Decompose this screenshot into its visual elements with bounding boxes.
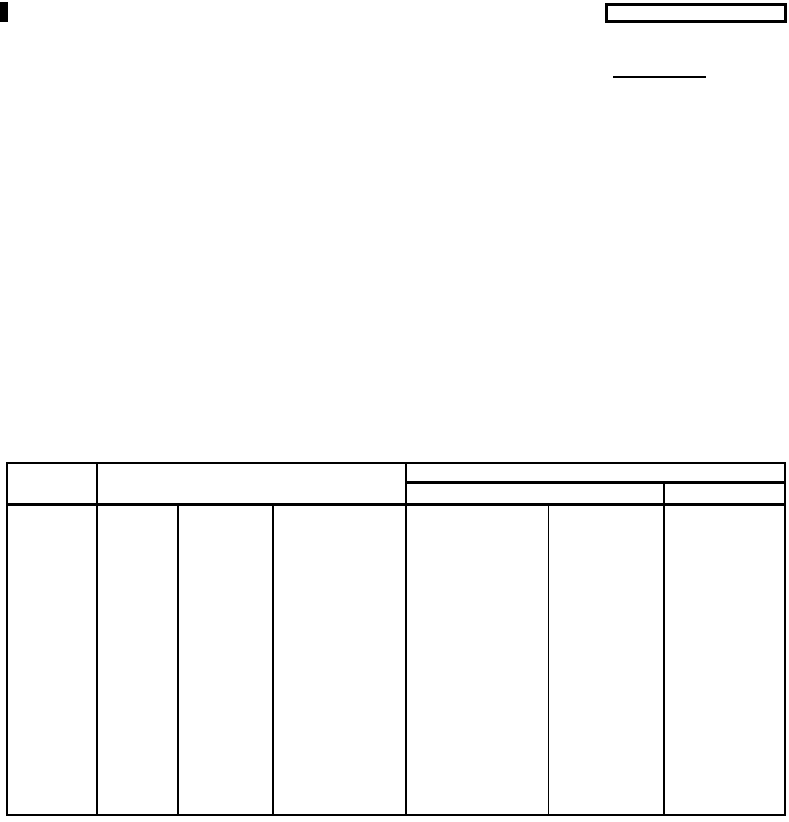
header-right-sub-left-cell <box>407 484 665 503</box>
table-body-row <box>8 506 784 814</box>
form-table <box>6 462 786 816</box>
header-right-span-cell <box>407 464 784 484</box>
blank-fill-in-line <box>613 76 706 78</box>
body-cell-3 <box>179 506 274 814</box>
top-right-form-box <box>605 3 787 23</box>
corner-mark <box>0 2 8 22</box>
body-cell-6 <box>549 506 665 814</box>
body-cell-7 <box>665 506 784 814</box>
header-cell-middle <box>98 464 407 503</box>
header-right-section <box>407 464 784 503</box>
header-cell-left <box>8 464 98 503</box>
header-right-sub-right-cell <box>665 484 784 503</box>
body-cell-2 <box>98 506 179 814</box>
body-cell-5 <box>407 506 549 814</box>
body-cell-4 <box>274 506 407 814</box>
header-right-subrow <box>407 484 784 503</box>
document-page <box>0 0 789 822</box>
body-cell-1 <box>8 506 98 814</box>
table-header-row <box>8 464 784 506</box>
